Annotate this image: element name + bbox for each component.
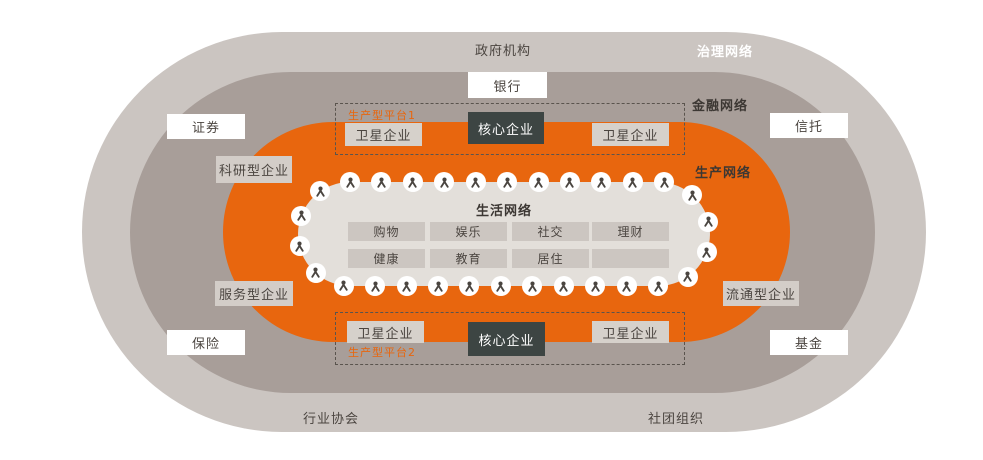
person-icon [428,276,448,296]
fund-box: 基金 [770,330,848,355]
person-icon [554,276,574,296]
production-network-label: 生产网络 [695,162,751,181]
life-item: 购物 [348,222,425,241]
person-icon [290,236,310,256]
person-icon [403,172,423,192]
person-icon [497,172,517,192]
life-item: 居住 [512,249,589,268]
industry-association-label: 行业协会 [303,408,359,427]
ecosystem-diagram: 治理网络 金融网络 生产网络 生活网络 政府机构 行业协会 社团组织 银行 证券… [0,0,983,460]
person-icon [623,172,643,192]
securities-box: 证券 [167,114,245,139]
finance-network-label: 金融网络 [692,95,748,114]
life-item: 理财 [592,222,669,241]
satellite-enterprise-box: 卫星企业 [347,321,424,343]
life-item: 教育 [430,249,507,268]
person-icon [529,172,549,192]
person-icon [340,172,360,192]
life-item [592,249,669,268]
government-agencies-label: 政府机构 [475,40,531,59]
satellite-enterprise-box: 卫星企业 [592,123,669,146]
bank-box: 银行 [468,72,547,98]
governance-network-label: 治理网络 [697,41,753,60]
person-icon [466,172,486,192]
person-icon [585,276,605,296]
production-platform-2-label: 生产型平台2 [348,344,416,360]
production-platform-1-label: 生产型平台1 [348,107,416,123]
trust-box: 信托 [770,113,848,138]
insurance-box: 保险 [167,330,245,355]
person-icon [697,242,717,262]
person-icon [698,212,718,232]
core-enterprise-box: 核心企业 [468,112,544,144]
person-icon [617,276,637,296]
research-enterprise-box: 科研型企业 [216,156,292,183]
person-icon [678,267,698,287]
life-item: 社交 [512,222,589,241]
person-icon [291,206,311,226]
person-icon [560,172,580,192]
person-icon [648,276,668,296]
circulation-enterprise-box: 流通型企业 [723,281,799,306]
life-item: 娱乐 [430,222,507,241]
person-icon [306,263,326,283]
satellite-enterprise-box: 卫星企业 [345,123,422,146]
life-network-label: 生活网络 [476,200,532,219]
core-enterprise-box: 核心企业 [468,322,545,356]
life-item: 健康 [348,249,425,268]
service-enterprise-box: 服务型企业 [215,281,293,306]
person-icon [334,276,354,296]
person-icon [491,276,511,296]
person-icon [397,276,417,296]
satellite-enterprise-box: 卫星企业 [592,321,669,343]
community-organization-label: 社团组织 [648,408,704,427]
